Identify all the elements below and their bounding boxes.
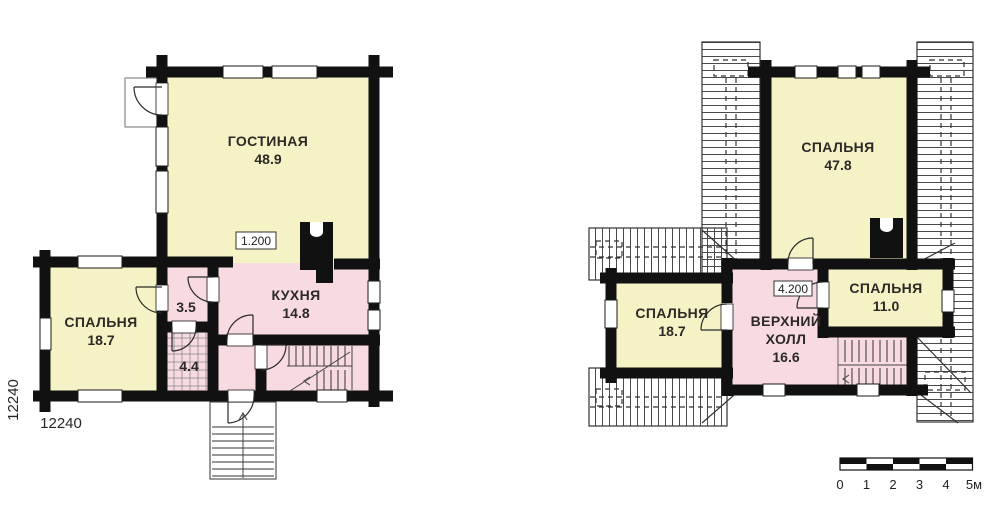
room-area-hall: 16.6 — [772, 349, 799, 365]
window — [763, 384, 785, 396]
window — [272, 66, 317, 78]
window — [857, 384, 879, 396]
room-label-bedroom-big: СПАЛЬНЯ — [801, 139, 874, 155]
door-opening — [172, 321, 196, 333]
room-area-kitchen: 14.8 — [282, 305, 309, 321]
door-opening — [817, 282, 829, 308]
room-label-bedroom: СПАЛЬНЯ — [64, 314, 137, 330]
elevation-label-floor1: 1.200 — [241, 234, 271, 248]
scale-tick-5: 5м — [966, 477, 982, 492]
door-opening — [207, 277, 219, 302]
room-area-bedroom: 18.7 — [87, 332, 114, 348]
window — [942, 290, 954, 312]
window — [368, 281, 380, 303]
room-area-storage: 4.4 — [179, 358, 199, 374]
floor-plan-sheet: 1.200 ГОСТИНАЯ 48.9 СПАЛЬНЯ 18.7 КУХНЯ 1… — [0, 0, 1000, 530]
window — [223, 66, 263, 78]
dimension-bottom: 12240 — [40, 415, 82, 432]
room-area-bedroom-left: 18.7 — [658, 323, 685, 339]
door-opening — [156, 285, 168, 311]
elevation-label-floor2: 4.200 — [778, 282, 808, 296]
window — [78, 256, 122, 268]
room-label-hall-line1: ВЕРХНИЙ — [751, 312, 822, 329]
window — [78, 390, 122, 402]
door-opening — [255, 345, 267, 369]
window — [317, 390, 347, 402]
floor-plans-canvas: 1.200 ГОСТИНАЯ 48.9 СПАЛЬНЯ 18.7 КУХНЯ 1… — [0, 0, 1000, 530]
scale-tick-2: 2 — [889, 477, 896, 492]
window — [838, 66, 856, 78]
room-area-bedroom-big: 47.8 — [824, 157, 851, 173]
room-label-hall-line2: ХОЛЛ — [766, 331, 807, 347]
window — [156, 127, 168, 166]
door-opening — [721, 304, 733, 330]
scale-tick-0: 0 — [836, 477, 843, 492]
window — [795, 66, 817, 78]
window — [862, 66, 880, 78]
room-area-bedroom-right: 11.0 — [873, 298, 900, 314]
scale-tick-3: 3 — [916, 477, 923, 492]
window — [368, 310, 380, 330]
room-area-bath: 3.5 — [176, 299, 196, 315]
scale-tick-1: 1 — [863, 477, 870, 492]
window — [40, 318, 51, 350]
door-opening — [788, 258, 813, 270]
dimension-left: 12240 — [5, 379, 22, 421]
scale-tick-4: 4 — [942, 477, 949, 492]
porch — [125, 78, 157, 127]
room-label-bedroom-left: СПАЛЬНЯ — [635, 305, 708, 321]
door-opening — [227, 334, 253, 346]
door-opening — [228, 390, 254, 402]
fireplace-floor2 — [870, 218, 903, 258]
window — [156, 171, 168, 213]
room-area-living: 48.9 — [254, 151, 281, 167]
room-label-living: ГОСТИНАЯ — [228, 133, 309, 149]
door-opening — [156, 83, 168, 115]
room-label-bedroom-right: СПАЛЬНЯ — [849, 280, 922, 296]
room-label-kitchen: КУХНЯ — [271, 287, 320, 303]
roof-strip-right — [917, 42, 973, 422]
window — [605, 300, 617, 328]
